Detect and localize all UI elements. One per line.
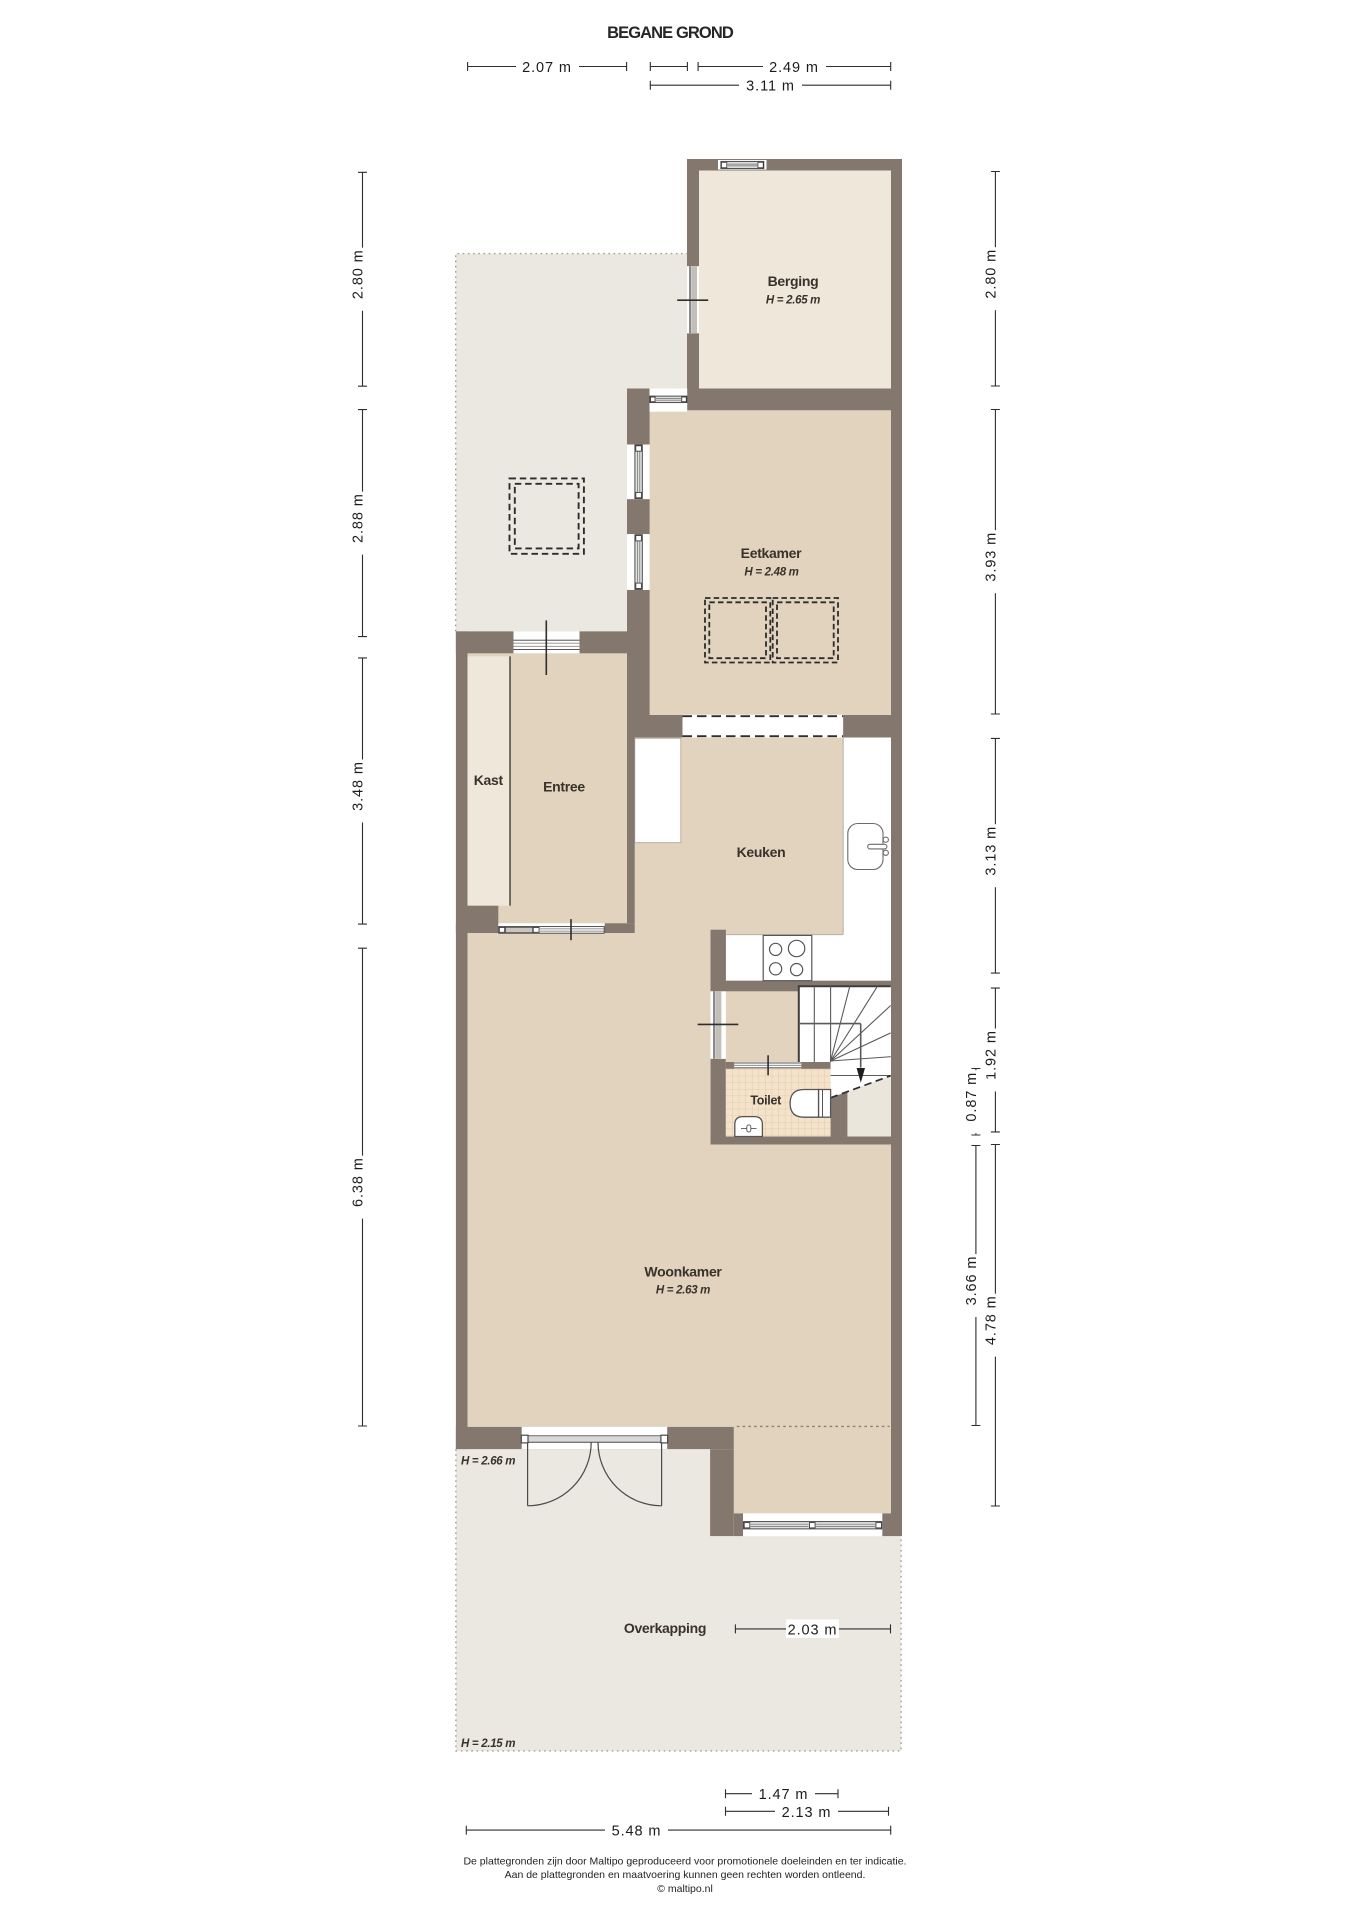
svg-text:3.13 m: 3.13 m: [983, 826, 999, 876]
svg-text:Toilet: Toilet: [750, 1094, 782, 1108]
svg-text:H = 2.48 m: H = 2.48 m: [744, 567, 798, 579]
svg-text:Woonkamer: Woonkamer: [644, 1264, 722, 1280]
svg-text:H = 2.15 m: H = 2.15 m: [461, 1738, 515, 1750]
svg-text:2.13 m: 2.13 m: [782, 1805, 832, 1821]
svg-text:Berging: Berging: [768, 273, 819, 289]
svg-text:© maltipo.nl: © maltipo.nl: [657, 1883, 713, 1895]
svg-text:Eetkamer: Eetkamer: [741, 545, 802, 561]
svg-text:De plattegronden zijn door Mal: De plattegronden zijn door Maltipo gepro…: [463, 1856, 906, 1868]
svg-text:H = 2.66 m: H = 2.66 m: [461, 1456, 515, 1468]
svg-text:Keuken: Keuken: [737, 844, 786, 860]
svg-text:2.88 m: 2.88 m: [351, 493, 367, 543]
svg-text:3.93 m: 3.93 m: [983, 532, 999, 582]
svg-text:3.48 m: 3.48 m: [351, 761, 367, 811]
svg-text:Aan de plattegronden en maatvo: Aan de plattegronden en maatvoering kunn…: [505, 1869, 866, 1881]
svg-text:Kast: Kast: [474, 772, 504, 788]
svg-text:H = 2.65 m: H = 2.65 m: [766, 295, 820, 307]
svg-text:3.66 m: 3.66 m: [964, 1256, 980, 1306]
svg-text:2.80 m: 2.80 m: [983, 249, 999, 299]
svg-text:2.03 m: 2.03 m: [788, 1623, 838, 1639]
svg-text:1.47 m: 1.47 m: [759, 1787, 809, 1803]
svg-text:Entree: Entree: [543, 779, 585, 795]
svg-text:H = 2.63 m: H = 2.63 m: [656, 1285, 710, 1297]
svg-text:3.11 m: 3.11 m: [746, 79, 795, 95]
svg-text:BEGANE GROND: BEGANE GROND: [607, 24, 734, 42]
svg-text:5.48 m: 5.48 m: [612, 1824, 662, 1840]
svg-text:2.80 m: 2.80 m: [351, 249, 367, 299]
svg-text:Overkapping: Overkapping: [624, 1620, 706, 1636]
svg-text:0.87 m: 0.87 m: [964, 1072, 980, 1122]
svg-text:2.49 m: 2.49 m: [769, 60, 819, 76]
svg-text:2.07 m: 2.07 m: [522, 60, 572, 76]
svg-text:6.38 m: 6.38 m: [351, 1157, 367, 1207]
